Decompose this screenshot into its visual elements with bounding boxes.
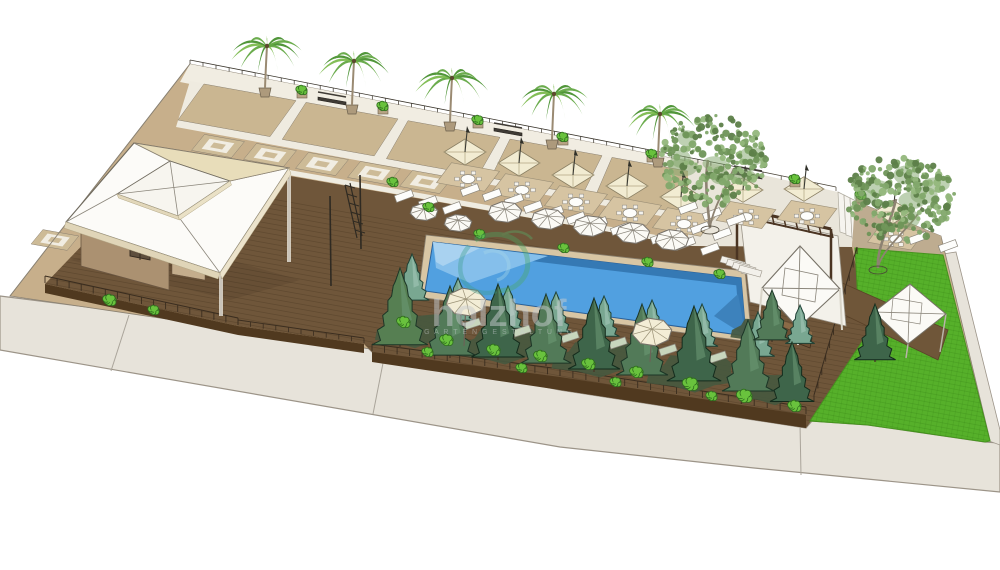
svg-text:G A R T E N G E S T A L T U N: G A R T E N G E S T A L T U N G xyxy=(424,329,574,336)
